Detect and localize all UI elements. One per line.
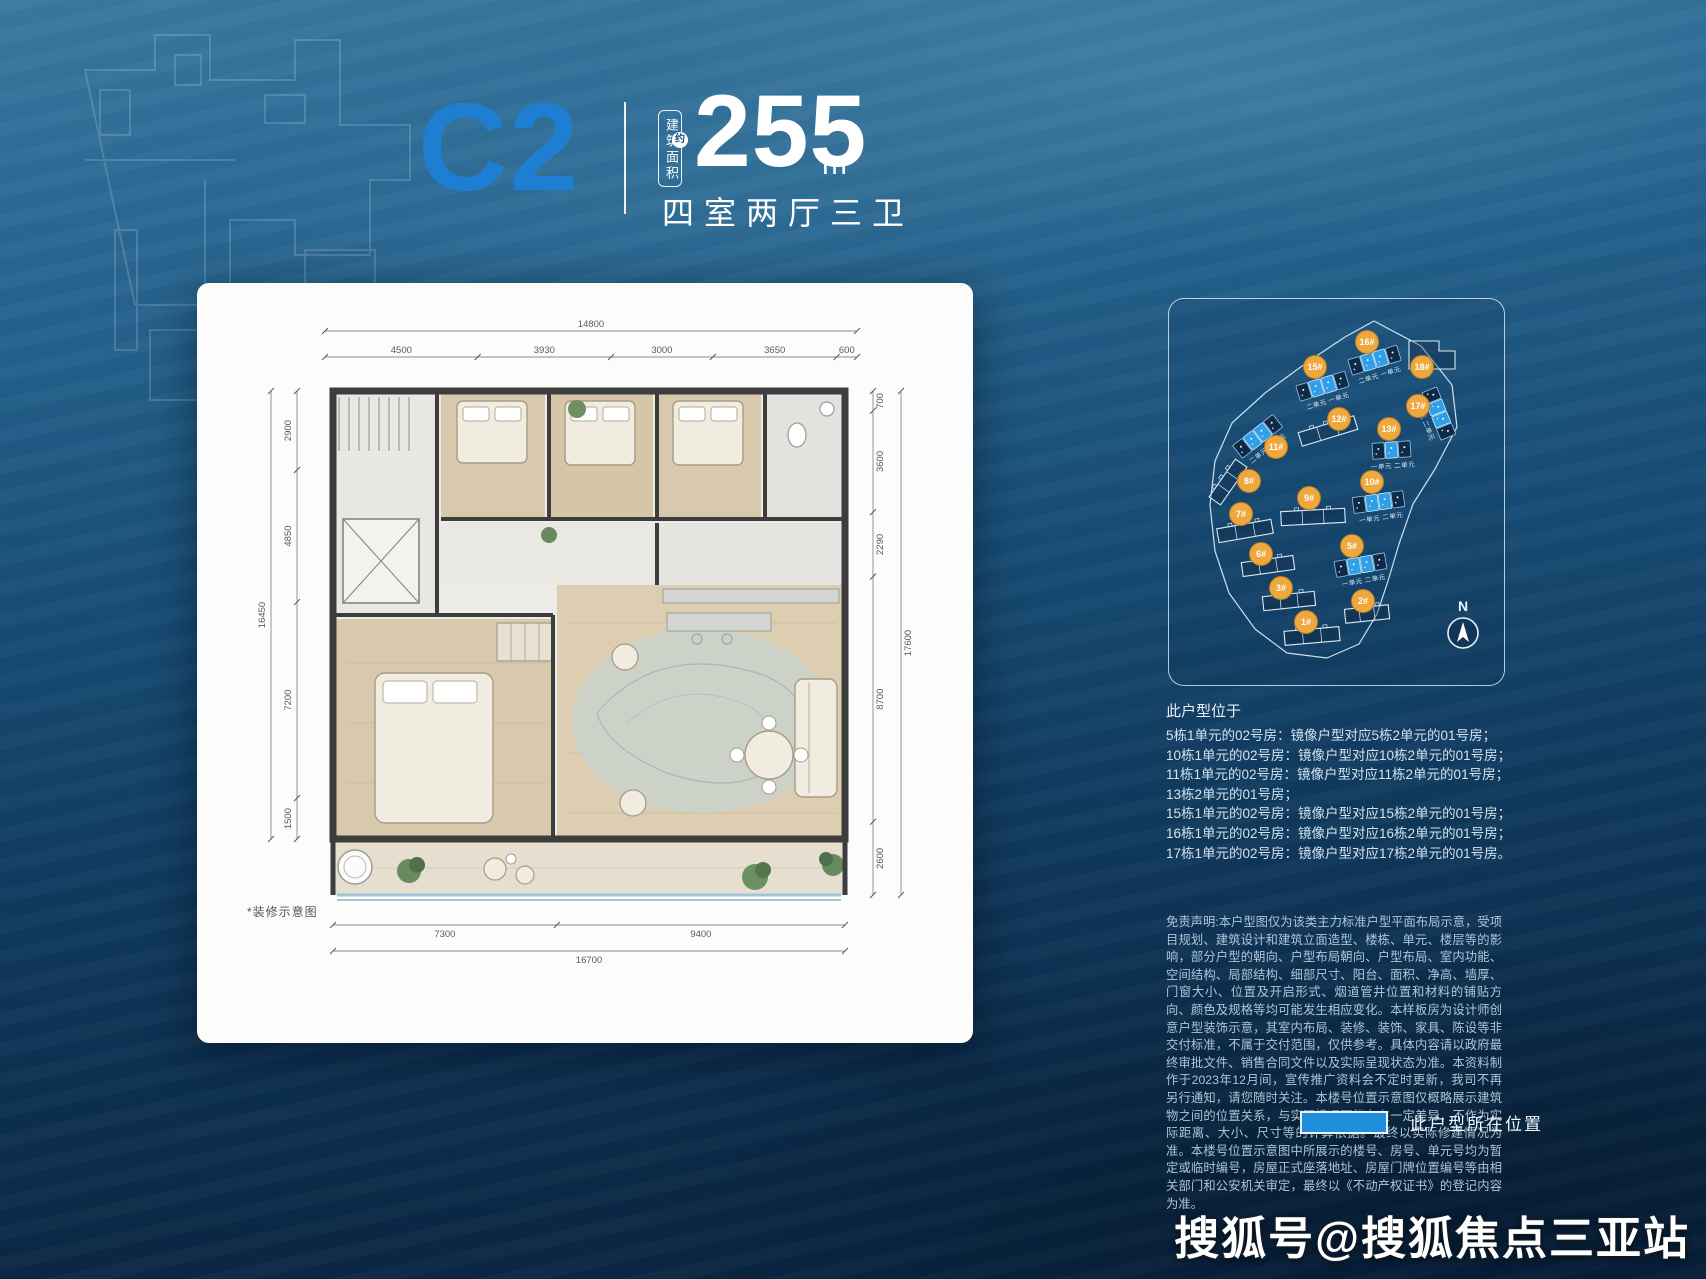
watermark: 搜狐号@搜狐焦点三亚站 xyxy=(1174,1202,1690,1267)
floorplan-drawing: 1480045003930300036506007300940016700290… xyxy=(197,283,973,1043)
building-badge: 2# xyxy=(1352,590,1375,613)
building-footprint: 二单元 一单元 xyxy=(1296,371,1353,413)
building-badge: 8# xyxy=(1238,470,1261,493)
header-divider xyxy=(624,102,626,214)
building-footprint: 一单元 二单元 xyxy=(1352,491,1406,526)
svg-text:15#: 15# xyxy=(1307,362,1322,372)
svg-text:700: 700 xyxy=(875,393,886,409)
svg-text:10#: 10# xyxy=(1364,477,1379,487)
svg-text:7200: 7200 xyxy=(283,690,294,711)
svg-text:600: 600 xyxy=(839,345,855,356)
room-configuration: 四室两厅三卫 xyxy=(662,188,914,234)
svg-text:16450: 16450 xyxy=(257,602,268,628)
svg-text:8#: 8# xyxy=(1244,476,1254,486)
building-badge: 13# xyxy=(1378,418,1401,441)
svg-text:2900: 2900 xyxy=(283,420,294,441)
area-label-vertical: 建筑面积 xyxy=(658,110,682,187)
svg-text:7300: 7300 xyxy=(434,929,455,940)
building-badge: 5# xyxy=(1341,535,1364,558)
area-unit-exponent: 2 xyxy=(850,138,859,158)
building-footprint: 一单元 二单元 xyxy=(1334,553,1389,589)
svg-text:2#: 2# xyxy=(1358,596,1368,606)
location-line: 17栋1单元的02号房：镜像户型对应17栋2单元的01号房。 xyxy=(1166,844,1518,864)
plan-note: *装修示意图 xyxy=(247,903,318,920)
svg-text:5#: 5# xyxy=(1347,541,1357,551)
building-footprint: 二单元 一单元 xyxy=(1348,345,1405,387)
area-unit: m xyxy=(822,148,847,182)
location-lines: 5栋1单元的02号房：镜像户型对应5栋2单元的01号房；10栋1单元的02号房：… xyxy=(1166,726,1518,863)
site-plan-map: 一单元 二单元一单元 二单元二单元 一单元一单元 二单元二单元 一单元二单元 一… xyxy=(1169,299,1504,685)
building-footprint: 一单元 二单元 xyxy=(1369,440,1415,471)
building-badge: 16# xyxy=(1356,331,1379,354)
svg-text:8700: 8700 xyxy=(875,689,886,710)
location-line: 15栋1单元的02号房：镜像户型对应15栋2单元的01号房； xyxy=(1166,804,1518,824)
legend-label: 此户型所在位置 xyxy=(1410,1110,1543,1135)
svg-text:3930: 3930 xyxy=(534,345,555,356)
unit-code: C2 xyxy=(418,86,581,210)
svg-text:11#: 11# xyxy=(1269,442,1284,452)
building-badge: 12# xyxy=(1328,408,1351,431)
svg-text:16700: 16700 xyxy=(576,955,602,966)
building-badge: 3# xyxy=(1270,577,1293,600)
legend-color-swatch xyxy=(1300,1111,1388,1134)
building-badge: 6# xyxy=(1250,543,1273,566)
svg-text:2290: 2290 xyxy=(875,534,886,555)
location-info: 此户型位于 5栋1单元的02号房：镜像户型对应5栋2单元的01号房；10栋1单元… xyxy=(1166,700,1518,863)
location-line: 13栋2单元的01号房； xyxy=(1166,785,1518,805)
floorplan-card: 1480045003930300036506007300940016700290… xyxy=(197,283,973,1043)
svg-text:4850: 4850 xyxy=(283,525,294,546)
svg-text:18#: 18# xyxy=(1414,362,1429,372)
location-line: 11栋1单元的02号房：镜像户型对应11栋2单元的01号房； xyxy=(1166,765,1518,785)
legend: 此户型所在位置 xyxy=(1300,1110,1543,1135)
building-badge: 9# xyxy=(1298,487,1321,510)
compass-icon: N xyxy=(1448,598,1478,648)
building-badge: 15# xyxy=(1304,356,1327,379)
site-plan-panel: 一单元 二单元一单元 二单元二单元 一单元一单元 二单元二单元 一单元二单元 一… xyxy=(1168,298,1505,686)
svg-text:9400: 9400 xyxy=(690,929,711,940)
svg-text:1#: 1# xyxy=(1301,617,1311,627)
svg-text:12#: 12# xyxy=(1331,414,1346,424)
location-line: 16栋1单元的02号房：镜像户型对应16栋2单元的01号房； xyxy=(1166,824,1518,844)
disclaimer-text: 免责声明:本户型图仅为该类主力标准户型平面布局示意，受项目规划、建筑设计和建筑立… xyxy=(1166,914,1502,1213)
svg-text:17600: 17600 xyxy=(903,630,914,656)
svg-text:17#: 17# xyxy=(1410,401,1425,411)
building-badge: 11# xyxy=(1265,436,1288,459)
building-badge: 1# xyxy=(1295,611,1318,634)
svg-text:9#: 9# xyxy=(1304,493,1314,503)
building-badge: 7# xyxy=(1230,503,1253,526)
svg-text:6#: 6# xyxy=(1256,549,1266,559)
svg-text:一单元 二单元: 一单元 二单元 xyxy=(1371,459,1416,471)
building-badge: 10# xyxy=(1361,471,1384,494)
location-title: 此户型位于 xyxy=(1166,700,1518,721)
svg-text:1500: 1500 xyxy=(283,808,294,829)
svg-text:N: N xyxy=(1458,598,1468,614)
svg-text:3000: 3000 xyxy=(651,345,672,356)
svg-text:7#: 7# xyxy=(1236,509,1246,519)
approx-badge: 约 xyxy=(672,132,688,148)
svg-text:13#: 13# xyxy=(1381,424,1396,434)
svg-text:3600: 3600 xyxy=(875,451,886,472)
svg-text:3650: 3650 xyxy=(764,345,785,356)
location-line: 10栋1单元的02号房：镜像户型对应10栋2单元的01号房； xyxy=(1166,746,1518,766)
building-badge: 18# xyxy=(1411,356,1434,379)
svg-text:16#: 16# xyxy=(1359,337,1374,347)
svg-text:4500: 4500 xyxy=(391,345,412,356)
location-line: 5栋1单元的02号房：镜像户型对应5栋2单元的01号房； xyxy=(1166,726,1518,746)
svg-text:2600: 2600 xyxy=(875,848,886,869)
building-badge: 17# xyxy=(1407,395,1430,418)
svg-text:3#: 3# xyxy=(1276,583,1286,593)
svg-text:14800: 14800 xyxy=(578,319,604,330)
